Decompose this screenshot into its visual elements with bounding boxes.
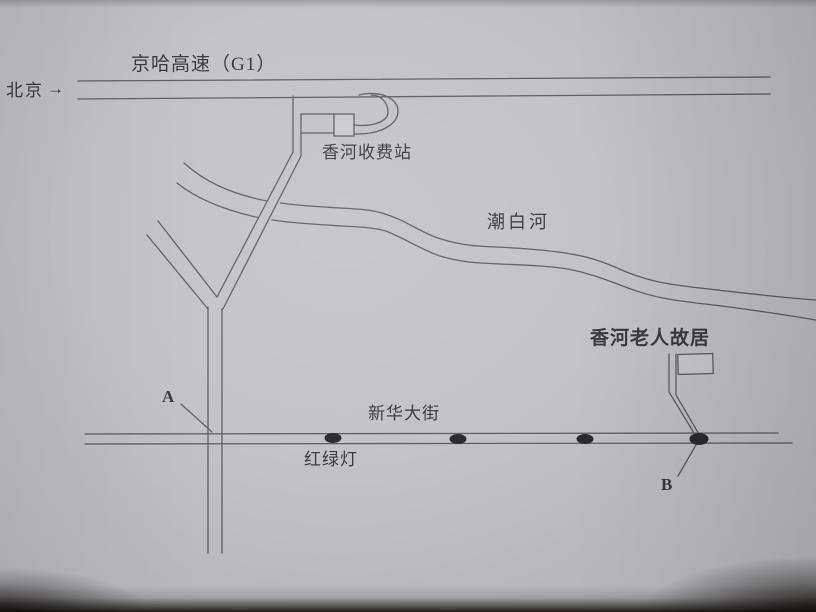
loop-ramp-outer	[354, 93, 398, 134]
street-label: 新华大街	[368, 405, 440, 424]
expressway-top-line	[78, 77, 770, 81]
residence-building	[678, 354, 714, 375]
beijing-direction-arrow-icon: →	[47, 80, 64, 99]
traffic-light-dot-4	[690, 433, 709, 445]
toll-station-label: 香河收费站	[322, 144, 412, 163]
toll-booth-building	[334, 114, 354, 136]
beijing-label: 北京	[6, 82, 44, 101]
point-a-label: A	[162, 388, 174, 407]
road-casing	[221, 153, 298, 305]
point-b-label: B	[661, 476, 672, 495]
river-label: 潮白河	[487, 213, 550, 233]
street-top-line	[85, 433, 778, 434]
loop-ramp-inner	[354, 95, 388, 125]
street-bottom-line	[85, 443, 792, 444]
traffic-light-label: 红绿灯	[304, 451, 358, 470]
residence-label: 香河老人故居	[590, 329, 710, 350]
route-map-photo: 京哈高速（G1） 北京 → 香河收费站 潮白河 香河老人故居 新华大街 红绿灯 …	[0, 0, 816, 612]
traffic-light-dot-2	[450, 434, 467, 444]
traffic-light-dot-1	[325, 433, 342, 443]
traffic-light-dot-3	[577, 434, 594, 444]
toll-road-right-line	[223, 156, 301, 309]
expressway-label: 京哈高速（G1）	[131, 55, 276, 76]
map-drawing	[0, 0, 816, 612]
toll-road-left-line	[217, 152, 293, 297]
expressway-bottom-line	[78, 94, 770, 99]
point-b-leader-line	[678, 445, 696, 476]
